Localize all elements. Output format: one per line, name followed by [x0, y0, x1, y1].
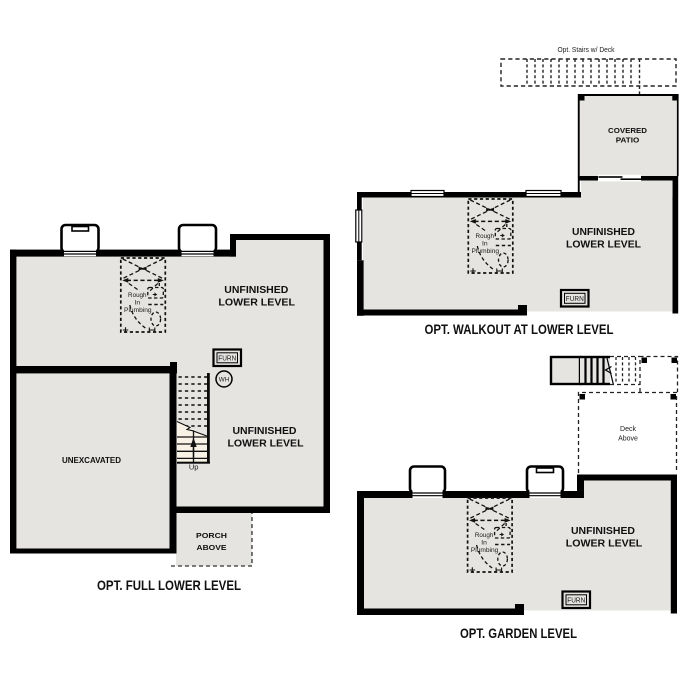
- svg-text:LOWER LEVEL: LOWER LEVEL: [566, 538, 643, 549]
- svg-text:Deck: Deck: [620, 426, 636, 433]
- svg-text:OPT. GARDEN LEVEL: OPT. GARDEN LEVEL: [460, 625, 577, 641]
- svg-text:LOWER LEVEL: LOWER LEVEL: [566, 239, 641, 250]
- svg-text:UNFINISHED: UNFINISHED: [572, 227, 635, 238]
- svg-text:UNFINISHED: UNFINISHED: [571, 526, 635, 537]
- svg-text:OPT. FULL LOWER LEVEL: OPT. FULL LOWER LEVEL: [97, 577, 241, 593]
- svg-text:FURN: FURN: [218, 356, 236, 363]
- svg-text:FURN: FURN: [566, 296, 584, 303]
- svg-text:Up: Up: [189, 462, 199, 471]
- svg-text:UNEXCAVATED: UNEXCAVATED: [62, 455, 121, 465]
- svg-text:UNFINISHED: UNFINISHED: [233, 426, 297, 437]
- svg-text:FURN: FURN: [567, 598, 585, 605]
- svg-text:ABOVE: ABOVE: [197, 543, 227, 552]
- svg-text:OPT. WALKOUT AT LOWER LEVEL: OPT. WALKOUT AT LOWER LEVEL: [425, 321, 614, 337]
- svg-text:COVERED: COVERED: [608, 126, 648, 135]
- svg-text:Above: Above: [618, 436, 638, 443]
- svg-text:PORCH: PORCH: [196, 531, 227, 540]
- svg-text:WH: WH: [219, 376, 230, 383]
- svg-text:LOWER LEVEL: LOWER LEVEL: [218, 297, 295, 308]
- svg-text:PATIO: PATIO: [616, 135, 640, 144]
- svg-text:LOWER LEVEL: LOWER LEVEL: [228, 438, 304, 449]
- svg-text:UNFINISHED: UNFINISHED: [224, 285, 288, 296]
- svg-text:Opt. Stairs w/ Deck: Opt. Stairs w/ Deck: [558, 45, 615, 54]
